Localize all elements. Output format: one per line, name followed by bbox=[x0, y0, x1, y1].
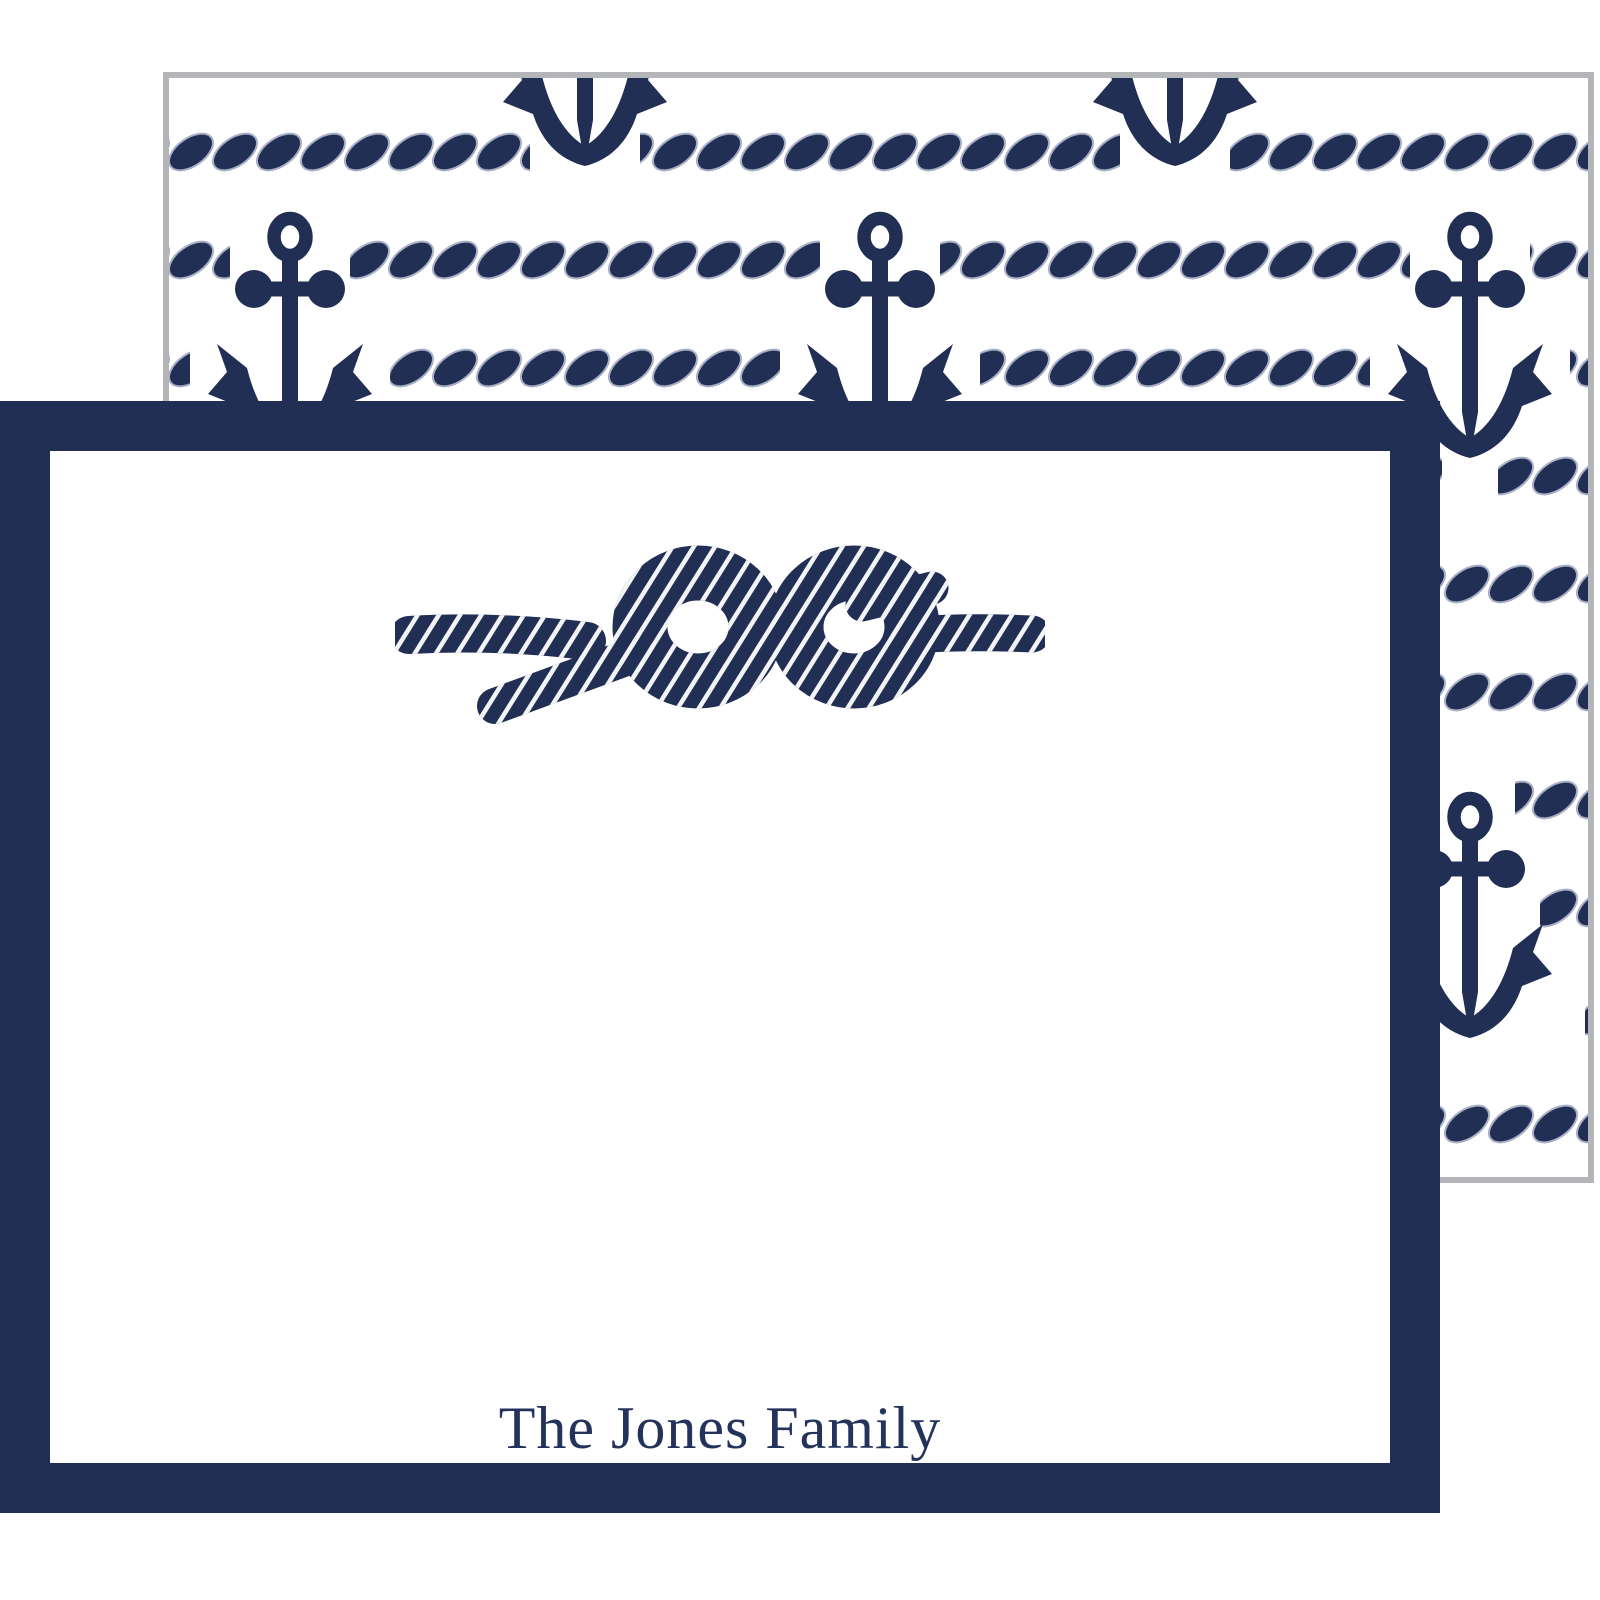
square-knot-icon bbox=[395, 545, 1045, 735]
rope-stripe-segment bbox=[169, 132, 530, 172]
product-image: The Jones Family bbox=[0, 0, 1600, 1600]
rope-stripe-segment bbox=[1540, 888, 1588, 928]
rope-stripe-segment bbox=[1498, 456, 1588, 496]
rope-stripe-segment bbox=[1570, 348, 1588, 388]
rope-stripe-segment bbox=[169, 240, 230, 280]
rope-stripe-segment bbox=[940, 240, 1410, 280]
front-card-face: The Jones Family bbox=[50, 451, 1390, 1463]
rope-stripe-segment bbox=[1585, 996, 1588, 1036]
front-card: The Jones Family bbox=[0, 401, 1440, 1513]
rope-stripe-segment bbox=[350, 240, 820, 280]
rope-stripe-segment bbox=[1230, 132, 1588, 172]
rope-stripe-segment bbox=[1530, 240, 1588, 280]
rope-stripe-segment bbox=[980, 348, 1370, 388]
rope-stripe-segment bbox=[640, 132, 1120, 172]
rope-stripe-segment bbox=[169, 348, 190, 388]
personalized-name: The Jones Family bbox=[50, 1398, 1390, 1458]
rope-stripe-segment bbox=[1515, 780, 1588, 820]
rope-stripe-segment bbox=[390, 348, 780, 388]
